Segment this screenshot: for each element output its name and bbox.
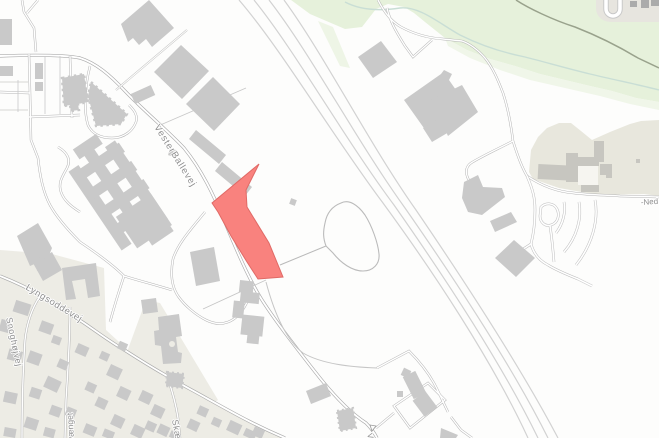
svg-text:Ve: Ve bbox=[365, 432, 376, 438]
svg-text:vænget: vænget bbox=[64, 412, 76, 438]
svg-text:-Ned: -Ned bbox=[641, 197, 659, 207]
